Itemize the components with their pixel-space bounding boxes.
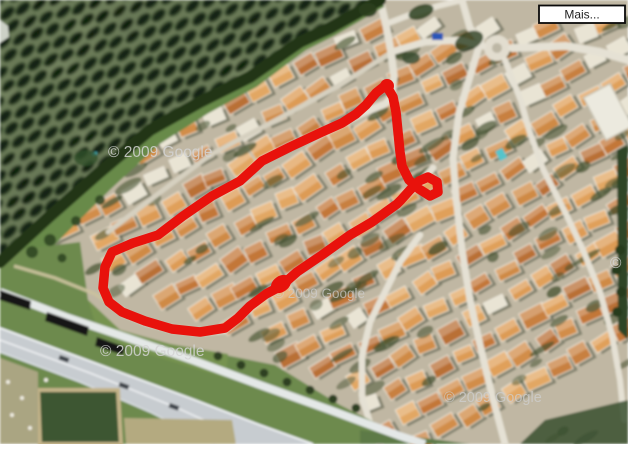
svg-text:© 2009 Google: © 2009 Google	[100, 343, 205, 360]
svg-text:Mais...: Mais...	[564, 8, 599, 22]
svg-text:©: ©	[610, 255, 622, 272]
svg-text:© 2009 Google: © 2009 Google	[108, 144, 213, 161]
svg-text:© 2009 Google: © 2009 Google	[444, 390, 542, 406]
